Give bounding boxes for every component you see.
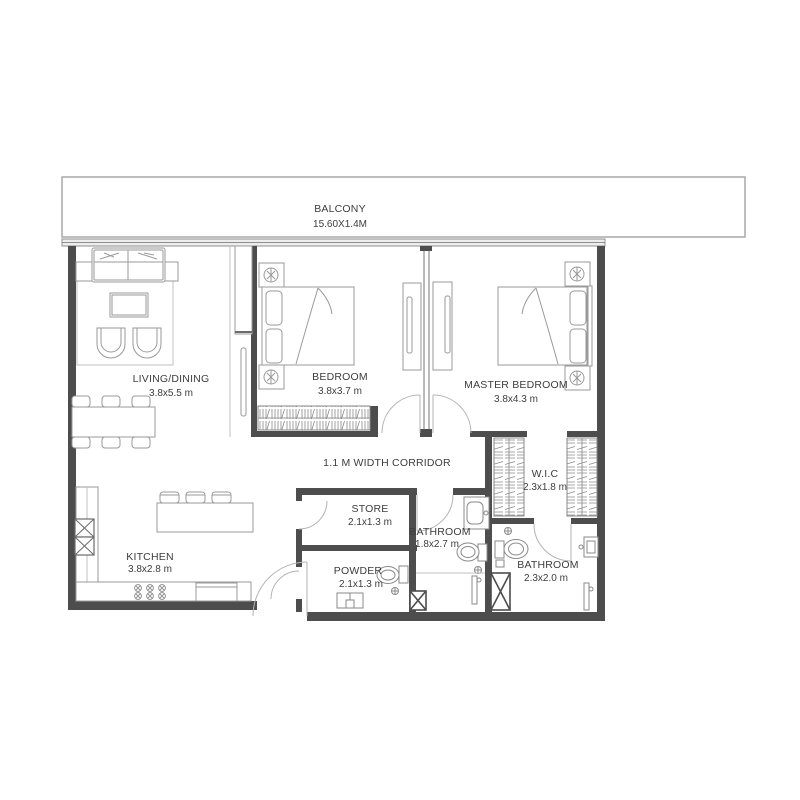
balcony-area: BALCONY 15.60X1.4M bbox=[62, 177, 745, 237]
tv-unit-icon bbox=[403, 283, 421, 370]
wall-bottom-kitchen bbox=[68, 601, 257, 610]
kitchen-dims: 3.8x2.8 m bbox=[128, 564, 172, 575]
wall-bedroom-south bbox=[251, 431, 378, 437]
room-living: LIVING/DINING 3.8x5.5 m bbox=[72, 246, 252, 448]
window-wall bbox=[62, 239, 605, 246]
drain-icon bbox=[505, 528, 512, 535]
room-kitchen: KITCHEN 3.8x2.8 m bbox=[75, 487, 253, 601]
drain-icon bbox=[475, 567, 482, 574]
wall-corridor-south bbox=[302, 488, 417, 495]
wall-wardrobe-end bbox=[370, 406, 378, 437]
bathroom1-label: BATHROOM bbox=[409, 526, 471, 538]
store-label: STORE bbox=[352, 503, 389, 515]
wall-master-south-a bbox=[470, 431, 527, 437]
appliance-icon bbox=[75, 519, 94, 555]
bathroom2-dims: 2.3x2.0 m bbox=[524, 573, 568, 584]
balcony-label: BALCONY bbox=[314, 203, 366, 215]
wardrobe-icon bbox=[258, 406, 370, 430]
kitchen-island-icon bbox=[157, 492, 253, 532]
tv-unit-icon bbox=[433, 282, 452, 370]
living-dims: 3.8x5.5 m bbox=[149, 388, 193, 399]
wall-store-powder-divider bbox=[296, 545, 417, 551]
wall-wic-south-b bbox=[571, 518, 605, 524]
room-wic: W.I.C 2.3x1.8 m bbox=[494, 438, 597, 516]
armchair-icon bbox=[133, 328, 161, 358]
room-store: STORE 2.1x1.3 m bbox=[348, 503, 392, 528]
powder-door-arc bbox=[271, 571, 299, 599]
bedroom-door-arc bbox=[382, 395, 420, 433]
nightstand-icon bbox=[259, 365, 284, 389]
corridor-label: 1.1 M WIDTH CORRIDOR bbox=[323, 457, 451, 469]
closet-icon bbox=[494, 438, 524, 516]
shaft-x-icon bbox=[410, 591, 426, 610]
drain-icon bbox=[392, 588, 399, 595]
side-table-icon bbox=[165, 262, 178, 281]
wall-bottom-right bbox=[307, 612, 605, 621]
wall-powder-west-top bbox=[296, 551, 302, 567]
sink-icon bbox=[464, 497, 489, 529]
closet-icon bbox=[567, 438, 597, 516]
powder-dims: 2.1x1.3 m bbox=[339, 579, 383, 590]
living-column bbox=[235, 246, 252, 334]
partition-cap-top bbox=[420, 246, 432, 251]
sink-icon bbox=[579, 537, 598, 557]
wall-powder-west-bottom bbox=[296, 599, 302, 612]
wall-store-west-top bbox=[296, 488, 302, 501]
tall-panel-icon bbox=[241, 348, 246, 416]
nightstand-icon bbox=[565, 262, 590, 286]
store-dims: 2.1x1.3 m bbox=[348, 517, 392, 528]
nightstand-icon bbox=[565, 366, 590, 390]
bathroom1-dims: 1.8x2.7 m bbox=[415, 539, 459, 550]
room-master: MASTER BEDROOM 3.8x4.3 m bbox=[433, 262, 592, 405]
shaft-x-icon bbox=[491, 573, 510, 610]
kitchen-label: KITCHEN bbox=[126, 551, 174, 563]
dining-table-icon bbox=[72, 396, 155, 448]
toilet-icon bbox=[495, 540, 528, 559]
wall-wic-south-a bbox=[492, 518, 534, 524]
balcony-dims: 15.60X1.4M bbox=[313, 219, 367, 230]
fixture-box bbox=[496, 560, 504, 567]
bedroom-label: BEDROOM bbox=[312, 371, 368, 383]
bathroom2-label: BATHROOM bbox=[517, 559, 579, 571]
room-bedroom: BEDROOM 3.8x3.7 m bbox=[258, 263, 421, 430]
balcony-outline bbox=[62, 177, 745, 237]
room-bathroom1: BATHROOM 1.8x2.7 m bbox=[409, 497, 489, 604]
partition-cap-bottom bbox=[420, 429, 432, 437]
nightstand-icon bbox=[259, 263, 284, 287]
corridor-area: 1.1 M WIDTH CORRIDOR bbox=[323, 457, 451, 469]
store-door-arc bbox=[299, 501, 327, 529]
master-label: MASTER BEDROOM bbox=[464, 379, 568, 391]
pedestal-sink-icon bbox=[337, 593, 363, 608]
bedroom-dims: 3.8x3.7 m bbox=[318, 386, 362, 397]
bed-icon bbox=[262, 287, 354, 365]
sofa-icon bbox=[92, 248, 165, 282]
powder-label: POWDER bbox=[334, 565, 383, 577]
wic-label: W.I.C bbox=[532, 468, 559, 480]
wic-dims: 2.3x1.8 m bbox=[523, 482, 567, 493]
coffee-table-icon bbox=[110, 293, 148, 317]
bath2-door-arc bbox=[534, 524, 571, 561]
room-powder: POWDER 2.1x1.3 m bbox=[334, 565, 408, 608]
side-table-icon bbox=[76, 262, 92, 281]
floor-plan: BALCONY 15.60X1.4M bbox=[0, 0, 800, 800]
wall-master-south-b bbox=[567, 431, 605, 437]
living-label: LIVING/DINING bbox=[133, 373, 210, 385]
shower-icon bbox=[472, 576, 481, 604]
master-door-arc bbox=[433, 395, 471, 433]
floor-plan-page: BALCONY 15.60X1.4M bbox=[0, 0, 800, 800]
shower-icon bbox=[584, 583, 593, 610]
bed-icon bbox=[498, 286, 592, 366]
armchair-icon bbox=[97, 328, 125, 358]
toilet-icon bbox=[457, 543, 487, 561]
master-dims: 3.8x4.3 m bbox=[494, 394, 538, 405]
